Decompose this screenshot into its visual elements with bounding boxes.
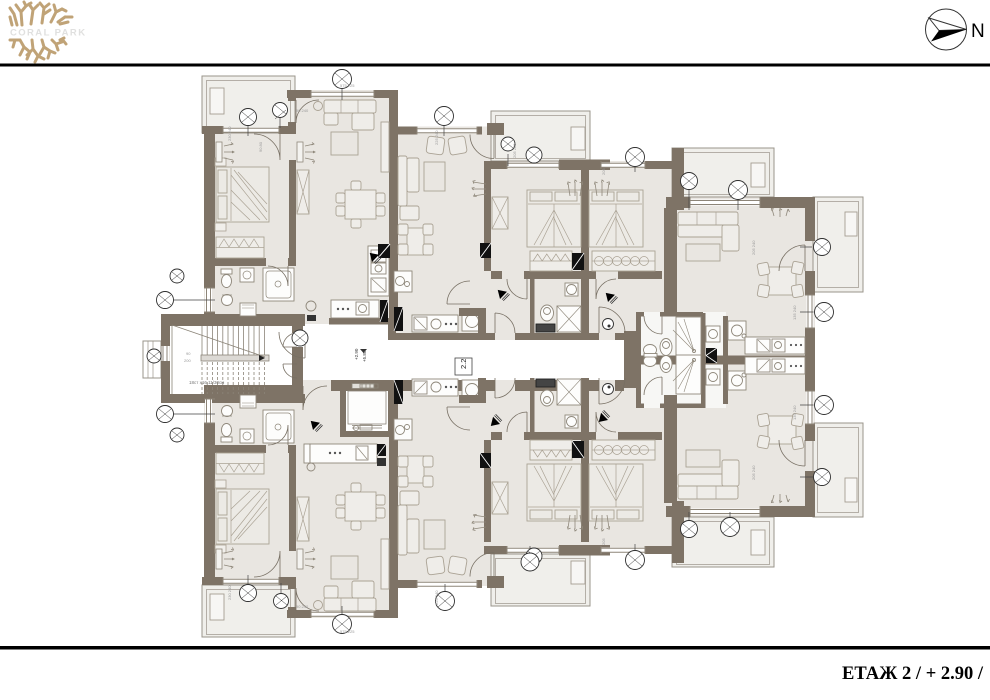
svg-text:N: N: [971, 21, 985, 42]
svg-text:575 225: 575 225: [340, 629, 355, 634]
svg-text:230 240: 230 240: [227, 585, 232, 600]
svg-text:205 240: 205 240: [751, 240, 756, 255]
svg-text:90 80: 90 80: [258, 141, 263, 152]
svg-text:+5.80: +5.80: [362, 350, 367, 362]
svg-text:18ст х16.11/30см: 18ст х16.11/30см: [189, 380, 224, 385]
svg-text:225 240: 225 240: [434, 130, 439, 145]
svg-text:CORAL PARK: CORAL PARK: [10, 28, 86, 39]
svg-text:ЕТАЖ 2 / + 2.90 /: ЕТАЖ 2 / + 2.90 /: [842, 664, 984, 684]
svg-text:90: 90: [186, 351, 191, 356]
svg-text:135 240: 135 240: [792, 405, 797, 420]
svg-text:90 240: 90 240: [296, 604, 309, 609]
svg-text:225 240: 225 240: [434, 590, 439, 605]
svg-text:+2.90: +2.90: [354, 348, 359, 360]
svg-text:90 240: 90 240: [296, 108, 309, 113]
svg-text:205: 205: [601, 168, 606, 175]
svg-text:230 240: 230 240: [227, 126, 232, 141]
svg-text:135 240: 135 240: [792, 305, 797, 320]
svg-text:575 225: 575 225: [340, 83, 355, 88]
svg-text:200: 200: [184, 358, 191, 363]
svg-text:2.2: 2.2: [459, 359, 468, 369]
svg-text:205 240: 205 240: [751, 465, 756, 480]
svg-text:205: 205: [601, 538, 606, 545]
svg-text:205 225: 205 225: [512, 143, 517, 158]
